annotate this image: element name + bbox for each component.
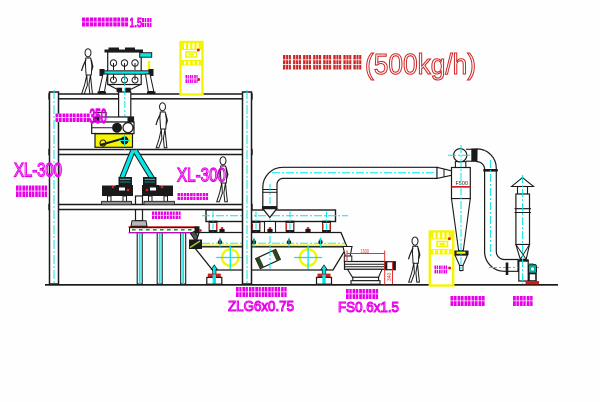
svg-text:ZLG6x0.75: ZLG6x0.75 (228, 299, 294, 315)
svg-text:XL-300: XL-300 (14, 161, 62, 182)
svg-text:XL-300: XL-300 (177, 166, 226, 187)
svg-text:F500: F500 (456, 181, 469, 187)
svg-text:340: 340 (387, 272, 393, 281)
svg-text:1.5: 1.5 (130, 15, 143, 30)
svg-text:FS0.6x1.5: FS0.6x1.5 (338, 299, 399, 316)
svg-text:(500kg/h): (500kg/h) (365, 49, 476, 81)
svg-text:1500: 1500 (361, 249, 370, 255)
svg-text:350: 350 (90, 105, 107, 128)
